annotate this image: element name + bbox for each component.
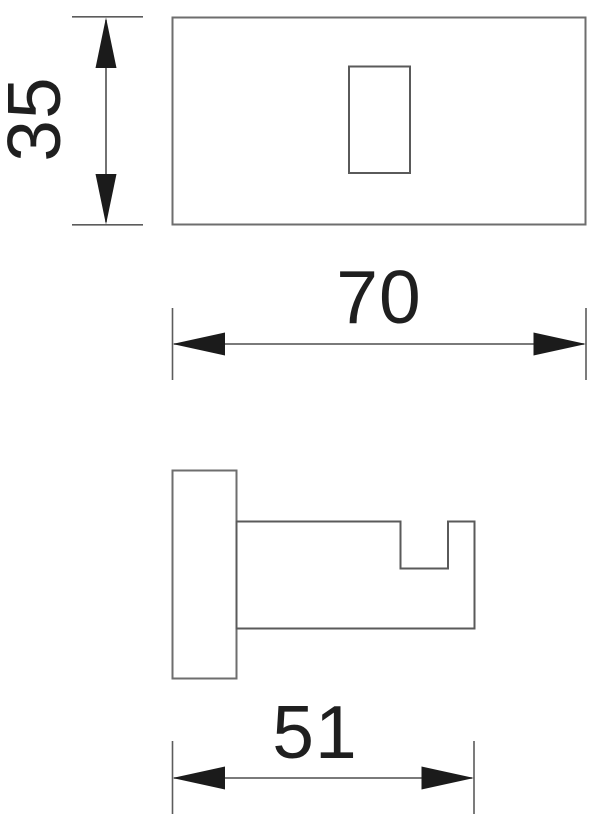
width-dimension-label: 70: [336, 255, 421, 339]
technical-drawing-canvas: 35 70 51: [0, 0, 600, 826]
hook-arm-outline: [237, 522, 475, 629]
dimension-height: 35: [0, 17, 143, 225]
height-dimension-label: 35: [0, 76, 76, 161]
top-view-outline: [173, 18, 586, 225]
drawing-page: 35 70 51: [0, 0, 600, 826]
dimension-width: 70: [173, 255, 587, 380]
height-arrowhead-top: [96, 18, 117, 69]
depth-arrowhead-right: [422, 767, 475, 790]
top-view: [173, 18, 586, 225]
wall-plate-outline: [173, 471, 237, 679]
height-arrowhead-bottom: [96, 174, 117, 225]
depth-arrowhead-left: [173, 767, 226, 790]
mounting-slot: [349, 67, 410, 174]
dimension-depth: 51: [173, 690, 475, 814]
width-arrowhead-right: [534, 333, 587, 356]
side-view: [173, 471, 475, 679]
depth-dimension-label: 51: [272, 690, 357, 774]
width-arrowhead-left: [173, 333, 226, 356]
